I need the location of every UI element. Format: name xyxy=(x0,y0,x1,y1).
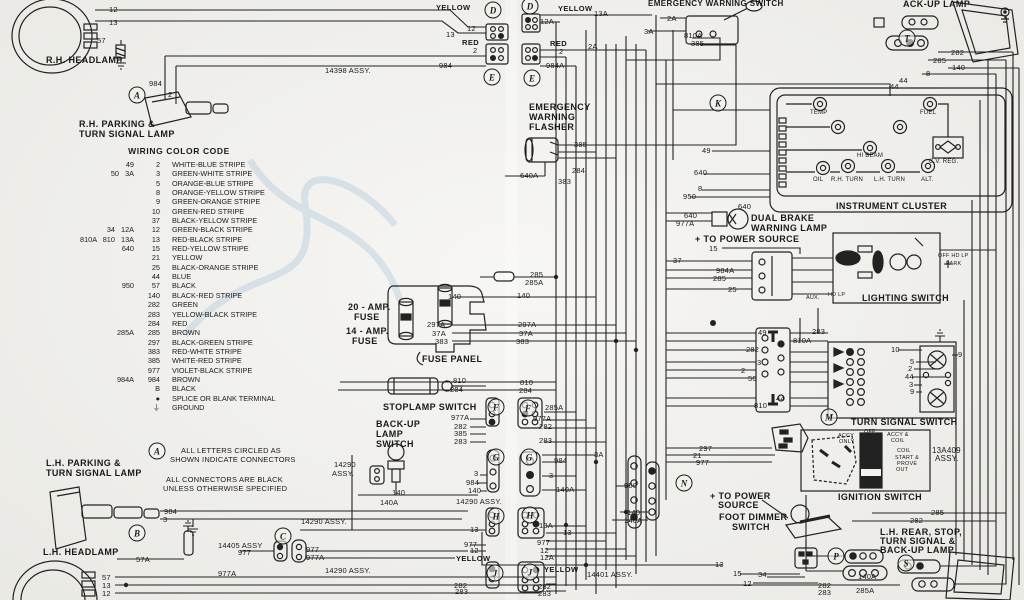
turn-signal-switch-icon xyxy=(828,342,956,418)
color-code-name: WHITE-RED STRIPE xyxy=(162,356,242,365)
color-code-row: ⏚GROUND xyxy=(56,403,302,412)
color-code-alt xyxy=(56,403,134,412)
color-code-row: 50 3A3GREEN-WHITE STRIPE xyxy=(56,169,302,178)
color-code-row: 5ORANGE-BLUE STRIPE xyxy=(56,179,302,188)
rh-rear-lamp-icon xyxy=(874,2,1018,62)
color-code-name: YELLOW-BLACK STRIPE xyxy=(162,310,257,319)
c-connector-icons xyxy=(274,540,306,562)
color-code-name: ORANGE-YELLOW STRIPE xyxy=(162,188,265,197)
color-code-alt xyxy=(56,272,134,281)
color-code-name: RED-YELLOW STRIPE xyxy=(162,244,249,253)
color-code-name: BLACK xyxy=(162,384,196,393)
color-code-code: 13 xyxy=(134,235,162,244)
color-code-row: 21YELLOW xyxy=(56,253,302,262)
ignition-switch-icon xyxy=(772,424,930,491)
color-code-row: 34 12A12GREEN-BLACK STRIPE xyxy=(56,225,302,234)
color-code-name: RED xyxy=(162,319,187,328)
p-connector-icons xyxy=(843,550,887,580)
backup-lamp-switch-icon xyxy=(370,444,404,484)
lh-parking-lamp-icon xyxy=(50,487,159,549)
color-code-code: 25 xyxy=(134,263,162,272)
color-code-code: B xyxy=(134,384,162,393)
stoplamp-switch-icon xyxy=(388,378,463,394)
color-code-name: WHITE-BLUE STRIPE xyxy=(162,160,245,169)
color-code-code: ● xyxy=(134,394,162,403)
color-code-name: GREEN-ORANGE STRIPE xyxy=(162,197,260,206)
color-code-name: RED-WHITE STRIPE xyxy=(162,347,242,356)
color-code-code: 385 xyxy=(134,356,162,365)
color-code-row: 37BLACK-YELLOW STRIPE xyxy=(56,216,302,225)
color-code-code: 297 xyxy=(134,338,162,347)
color-code-row: 297BLACK-GREEN STRIPE xyxy=(56,338,302,347)
color-code-name: SPLICE OR BLANK TERMINAL xyxy=(162,394,276,403)
n-connector-strips xyxy=(628,456,659,528)
lh-headlamp-icon xyxy=(13,531,193,600)
color-code-row: BBLACK xyxy=(56,384,302,393)
color-code-code: 285 xyxy=(134,328,162,337)
fuse-panel-icon xyxy=(388,272,514,365)
color-code-alt: 50 3A xyxy=(56,169,134,178)
scan-seam xyxy=(505,0,517,600)
color-code-row: 810A 810 13A13RED-BLACK STRIPE xyxy=(56,235,302,244)
color-code-name: YELLOW xyxy=(162,253,202,262)
color-code-code: 984 xyxy=(134,375,162,384)
color-code-alt xyxy=(56,310,134,319)
color-code-alt: 34 12A xyxy=(56,225,134,234)
color-code-code: 977 xyxy=(134,366,162,375)
rh-headlamp-icon xyxy=(12,0,125,73)
color-code-name: GREEN-BLACK STRIPE xyxy=(162,225,253,234)
wiring-color-code-table: WIRING COLOR CODE 492WHITE-BLUE STRIPE50… xyxy=(56,146,302,412)
color-code-name: BROWN xyxy=(162,375,200,384)
color-code-alt xyxy=(56,338,134,347)
color-code-alt: 49 xyxy=(56,160,134,169)
turn-signal-connector-icon xyxy=(756,328,790,412)
color-code-alt: 950 xyxy=(56,281,134,290)
color-code-name: BLACK xyxy=(162,281,196,290)
color-code-alt xyxy=(56,197,134,206)
color-code-alt xyxy=(56,188,134,197)
color-code-name: GROUND xyxy=(162,403,204,412)
color-code-row: ●SPLICE OR BLANK TERMINAL xyxy=(56,394,302,403)
rh-parking-lamp-icon xyxy=(145,92,228,126)
color-code-name: VIOLET-BLACK STRIPE xyxy=(162,366,252,375)
color-code-code: 383 xyxy=(134,347,162,356)
color-code-code: 57 xyxy=(134,281,162,290)
color-code-code: 3 xyxy=(134,169,162,178)
color-code-code: 21 xyxy=(134,253,162,262)
color-code-code: 140 xyxy=(134,291,162,300)
color-code-code: 283 xyxy=(134,310,162,319)
color-code-alt xyxy=(56,366,134,375)
color-code-row: 44BLUE xyxy=(56,272,302,281)
color-code-name: GREEN-RED STRIPE xyxy=(162,207,244,216)
color-code-name: RED-BLACK STRIPE xyxy=(162,235,242,244)
color-code-alt xyxy=(56,263,134,272)
color-code-alt xyxy=(56,356,134,365)
color-code-name: BROWN xyxy=(162,328,200,337)
wiring-diagram-page: WIRING COLOR CODE 492WHITE-BLUE STRIPE50… xyxy=(0,0,1024,600)
color-code-code: 15 xyxy=(134,244,162,253)
color-code-name: BLUE xyxy=(162,272,191,281)
color-code-name: BLACK-ORANGE STRIPE xyxy=(162,263,258,272)
color-code-code: 10 xyxy=(134,207,162,216)
color-code-alt: 810A 810 13A xyxy=(56,235,134,244)
color-code-alt xyxy=(56,179,134,188)
color-code-code: 8 xyxy=(134,188,162,197)
color-code-row: 64015RED-YELLOW STRIPE xyxy=(56,244,302,253)
color-code-alt: 984A xyxy=(56,375,134,384)
color-code-alt xyxy=(56,394,134,403)
color-code-alt: 285A xyxy=(56,328,134,337)
lh-rear-lamp-icon xyxy=(898,552,1014,600)
color-code-name: GREEN-WHITE STRIPE xyxy=(162,169,252,178)
color-code-code: 44 xyxy=(134,272,162,281)
color-code-alt xyxy=(56,300,134,309)
color-code-row: 10GREEN-RED STRIPE xyxy=(56,207,302,216)
color-code-row: 140BLACK-RED STRIPE xyxy=(56,291,302,300)
color-code-alt xyxy=(56,216,134,225)
color-code-code: 284 xyxy=(134,319,162,328)
color-code-row: 25BLACK-ORANGE STRIPE xyxy=(56,263,302,272)
color-code-row: 284RED xyxy=(56,319,302,328)
color-code-name: BLACK-YELLOW STRIPE xyxy=(162,216,257,225)
color-code-alt: 640 xyxy=(56,244,134,253)
color-code-row: 383RED-WHITE STRIPE xyxy=(56,347,302,356)
instrument-cluster-icon xyxy=(770,88,1012,212)
color-code-code: ⏚ xyxy=(134,403,162,412)
color-code-alt xyxy=(56,253,134,262)
color-code-row: 285A285BROWN xyxy=(56,328,302,337)
color-code-name: GREEN xyxy=(162,300,198,309)
color-code-alt xyxy=(56,347,134,356)
color-code-alt xyxy=(56,384,134,393)
foot-dimmer-switch-icon xyxy=(786,505,841,568)
color-code-code: 2 xyxy=(134,160,162,169)
color-code-row: 8ORANGE-YELLOW STRIPE xyxy=(56,188,302,197)
color-code-row: 492WHITE-BLUE STRIPE xyxy=(56,160,302,169)
color-code-row: 282GREEN xyxy=(56,300,302,309)
color-code-code: 5 xyxy=(134,179,162,188)
lighting-switch-icon xyxy=(752,233,940,303)
color-code-name: BLACK-GREEN STRIPE xyxy=(162,338,253,347)
color-code-code: 12 xyxy=(134,225,162,234)
color-code-row: 95057BLACK xyxy=(56,281,302,290)
dual-brake-warning-lamp-icon xyxy=(712,209,748,229)
color-code-alt xyxy=(56,319,134,328)
color-code-alt xyxy=(56,207,134,216)
color-code-code: 37 xyxy=(134,216,162,225)
color-code-code: 282 xyxy=(134,300,162,309)
color-code-code: 9 xyxy=(134,197,162,206)
color-code-name: BLACK-RED STRIPE xyxy=(162,291,242,300)
color-code-row: 385WHITE-RED STRIPE xyxy=(56,356,302,365)
color-code-row: 283YELLOW-BLACK STRIPE xyxy=(56,310,302,319)
color-code-alt xyxy=(56,291,134,300)
emergency-flasher-icon xyxy=(525,138,558,162)
color-code-rows: 492WHITE-BLUE STRIPE50 3A3GREEN-WHITE ST… xyxy=(56,160,302,412)
color-code-row: 984A984BROWN xyxy=(56,375,302,384)
color-code-row: 977VIOLET-BLACK STRIPE xyxy=(56,366,302,375)
color-code-row: 9GREEN-ORANGE STRIPE xyxy=(56,197,302,206)
color-code-title: WIRING COLOR CODE xyxy=(56,146,302,156)
color-code-name: ORANGE-BLUE STRIPE xyxy=(162,179,254,188)
